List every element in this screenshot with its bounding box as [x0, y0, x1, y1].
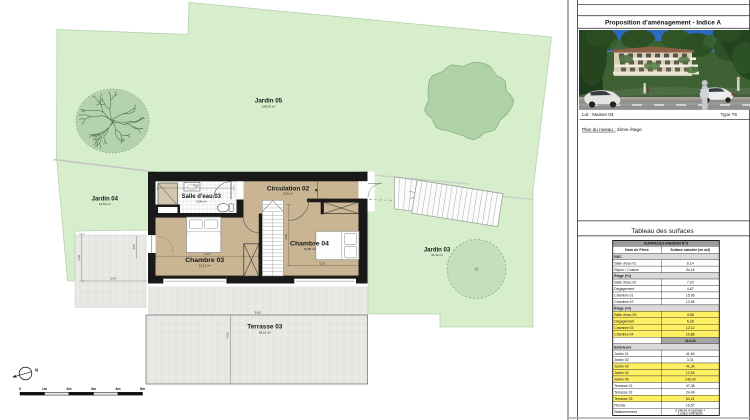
svg-text:Chambre 03: Chambre 03 — [614, 326, 633, 330]
svg-text:16,57: 16,57 — [686, 403, 695, 407]
svg-text:4,13: 4,13 — [204, 252, 210, 256]
svg-text:Jardin 02: Jardin 02 — [614, 358, 628, 362]
svg-text:4,58: 4,58 — [687, 313, 694, 317]
svg-text:4,87: 4,87 — [687, 287, 694, 291]
svg-text:41,34 m²: 41,34 m² — [431, 253, 443, 257]
svg-text:Salle d'eau 01: Salle d'eau 01 — [614, 261, 636, 265]
svg-text:Salle d'eau 02: Salle d'eau 02 — [614, 281, 636, 285]
svg-text:RDC: RDC — [614, 255, 622, 259]
svg-text:3,31: 3,31 — [687, 358, 694, 362]
svg-text:4m: 4m — [115, 387, 120, 391]
svg-text:Surface calculée (en m2): Surface calculée (en m2) — [670, 248, 710, 252]
svg-text:3,36: 3,36 — [77, 255, 81, 261]
svg-text:Tableau des surfaces: Tableau des surfaces — [631, 228, 694, 235]
svg-text:Chambre 01: Chambre 01 — [614, 294, 633, 298]
svg-text:114,44: 114,44 — [685, 339, 696, 343]
svg-text:Étage (+1): Étage (+1) — [614, 273, 631, 278]
svg-text:12,53: 12,53 — [686, 371, 695, 375]
svg-text:Séjour / Cuisine: Séjour / Cuisine — [614, 268, 639, 272]
svg-text:4,08 m²: 4,08 m² — [196, 200, 206, 204]
svg-text:3,43: 3,43 — [110, 277, 116, 281]
svg-text:Terrasse 02: Terrasse 02 — [614, 391, 632, 395]
svg-text:1,80: 1,80 — [132, 244, 136, 250]
svg-text:41,64: 41,64 — [686, 352, 695, 356]
svg-text:3,05: 3,05 — [193, 184, 199, 188]
svg-text:15,06: 15,06 — [686, 294, 695, 298]
svg-text:Jardin 05: Jardin 05 — [255, 98, 283, 105]
svg-text:9,60: 9,60 — [255, 311, 261, 315]
svg-text:Dégagement: Dégagement — [614, 319, 634, 323]
svg-text:0: 0 — [19, 387, 21, 391]
svg-text:6,14: 6,14 — [687, 261, 694, 265]
svg-text:1m: 1m — [42, 387, 47, 391]
svg-text:12,53 m²: 12,53 m² — [99, 202, 111, 206]
svg-text:3,92: 3,92 — [284, 234, 288, 240]
svg-text:12,12: 12,12 — [686, 326, 695, 330]
svg-text:Lot : Maison 03: Lot : Maison 03 — [582, 112, 614, 117]
svg-text:47,38: 47,38 — [686, 384, 695, 388]
svg-text:Étage (+2): Étage (+2) — [614, 306, 631, 311]
svg-text:Salle d'eau 03: Salle d'eau 03 — [614, 313, 636, 317]
svg-text:Terrasse 03: Terrasse 03 — [614, 397, 632, 401]
svg-text:5,25 m²: 5,25 m² — [283, 192, 293, 196]
svg-text:Type T5: Type T5 — [720, 112, 737, 117]
svg-text:Stationnement: Stationnement — [614, 410, 637, 414]
svg-text:54,21: 54,21 — [686, 397, 695, 401]
svg-text:13,96: 13,96 — [686, 300, 695, 304]
svg-text:15,88 m²: 15,88 m² — [304, 247, 316, 251]
svg-text:Piscine: Piscine — [614, 403, 625, 407]
svg-text:5,28: 5,28 — [687, 319, 694, 323]
svg-text:Extérieurs: Extérieurs — [614, 345, 631, 349]
svg-text:6,02: 6,02 — [226, 332, 230, 338]
svg-text:5m: 5m — [140, 387, 145, 391]
svg-text:41,34: 41,34 — [686, 365, 695, 369]
svg-text:Jardin 01: Jardin 01 — [614, 352, 628, 356]
svg-text:34,16: 34,16 — [686, 268, 695, 272]
svg-text:Nom de Pièce: Nom de Pièce — [625, 248, 649, 252]
svg-text:Jardin 03: Jardin 03 — [614, 365, 628, 369]
svg-text:N: N — [35, 368, 38, 373]
svg-text:2m: 2m — [66, 387, 71, 391]
svg-text:SURFACES MAISON N°3: SURFACES MAISON N°3 — [644, 242, 688, 246]
svg-text:Jardin 04: Jardin 04 — [614, 371, 628, 375]
svg-text:54,21 m²: 54,21 m² — [259, 330, 271, 334]
svg-text:148,09: 148,09 — [685, 378, 696, 382]
svg-text:Terrasse 03: Terrasse 03 — [247, 323, 283, 330]
svg-text:Terrasse 01: Terrasse 01 — [614, 384, 632, 388]
svg-text:Dégagement: Dégagement — [614, 287, 634, 291]
svg-text:12,12 m²: 12,12 m² — [199, 264, 211, 268]
svg-text:10,88: 10,88 — [686, 332, 695, 336]
svg-text:24,49: 24,49 — [686, 391, 695, 395]
svg-text:Plan du niveau : 2ème étage: Plan du niveau : 2ème étage — [582, 127, 642, 132]
svg-text:Chambre 02: Chambre 02 — [614, 300, 633, 304]
svg-text:3m: 3m — [91, 387, 96, 391]
svg-text:Proposition d'aménagement - In: Proposition d'aménagement - Indice A — [605, 19, 721, 26]
svg-text:Jardin 05: Jardin 05 — [614, 378, 628, 382]
svg-text:7,20: 7,20 — [687, 281, 694, 285]
svg-text:148,09 m²: 148,09 m² — [262, 105, 276, 109]
svg-text:Chambre 04: Chambre 04 — [614, 332, 633, 336]
svg-text:3,20: 3,20 — [319, 261, 325, 265]
